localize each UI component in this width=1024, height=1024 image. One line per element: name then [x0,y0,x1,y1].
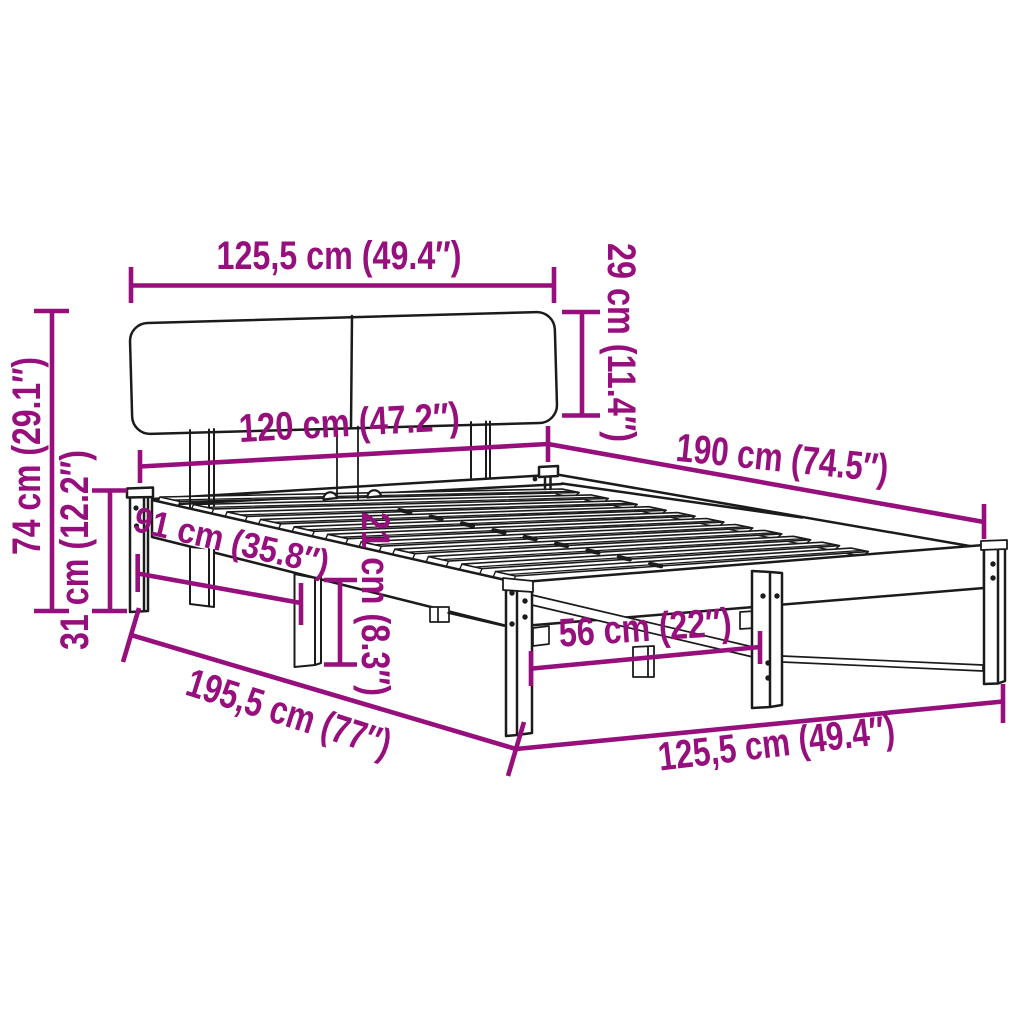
svg-text:31 cm (12.2″): 31 cm (12.2″) [53,450,97,650]
svg-text:29 cm (11.4″): 29 cm (11.4″) [599,243,643,442]
svg-text:74 cm (29.1″): 74 cm (29.1″) [5,357,49,555]
svg-text:21 cm (8.3″): 21 cm (8.3″) [353,512,397,696]
svg-text:125,5 cm (49.4″): 125,5 cm (49.4″) [217,234,462,278]
